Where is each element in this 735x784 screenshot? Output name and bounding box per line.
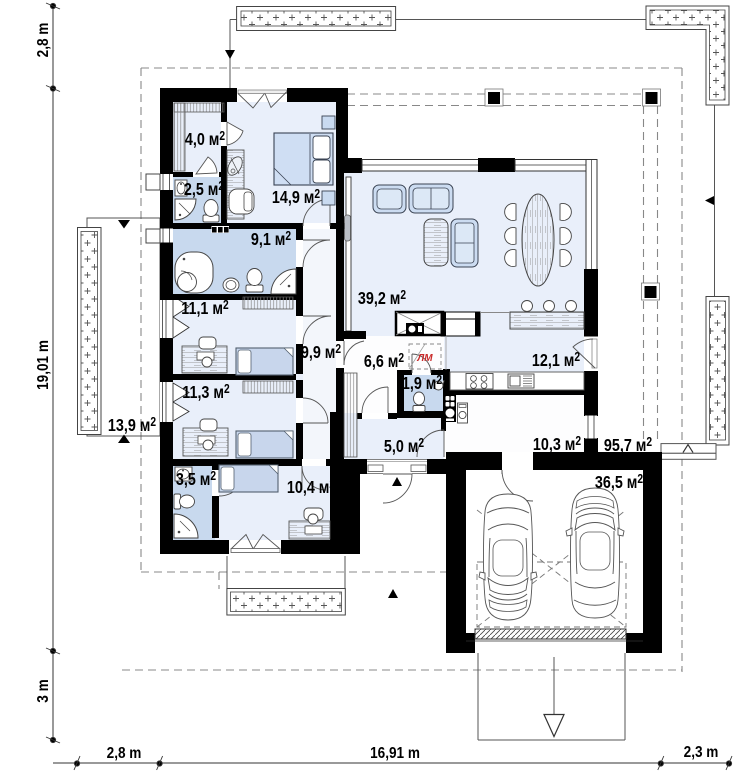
svg-text:12,1 м2: 12,1 м2 (532, 351, 580, 370)
svg-text:10,3 м2: 10,3 м2 (533, 435, 581, 454)
svg-text:3 m: 3 m (35, 679, 52, 702)
svg-text:2,8 m: 2,8 m (107, 745, 142, 762)
svg-text:36,5 м2: 36,5 м2 (595, 473, 643, 492)
svg-text:3,5 м2: 3,5 м2 (176, 470, 216, 489)
svg-text:11,3 м2: 11,3 м2 (182, 383, 229, 402)
svg-text:9,1 м2: 9,1 м2 (251, 230, 291, 249)
svg-text:16,91 m: 16,91 m (370, 745, 420, 762)
svg-text:4,0 м2: 4,0 м2 (185, 130, 225, 149)
svg-text:2,3 m: 2,3 m (684, 744, 719, 761)
svg-text:ЛМ: ЛМ (416, 353, 433, 364)
svg-text:19,01 m: 19,01 m (35, 340, 52, 390)
svg-text:39,2 м2: 39,2 м2 (358, 289, 406, 308)
svg-text:10,4 м2: 10,4 м2 (287, 478, 335, 497)
svg-text:9,9 м2: 9,9 м2 (301, 343, 341, 362)
svg-text:2,8 m: 2,8 m (35, 23, 52, 58)
svg-text:13,9 м2: 13,9 м2 (108, 416, 156, 435)
svg-text:1,9 м2: 1,9 м2 (402, 374, 442, 393)
svg-text:11,1 м2: 11,1 м2 (181, 299, 228, 318)
svg-text:2,5 м2: 2,5 м2 (184, 180, 224, 199)
svg-text:95,7 м2: 95,7 м2 (604, 436, 652, 455)
svg-text:14,9 м2: 14,9 м2 (272, 188, 320, 207)
svg-text:6,6 м2: 6,6 м2 (364, 352, 404, 371)
svg-text:5,0 м2: 5,0 м2 (384, 437, 424, 456)
